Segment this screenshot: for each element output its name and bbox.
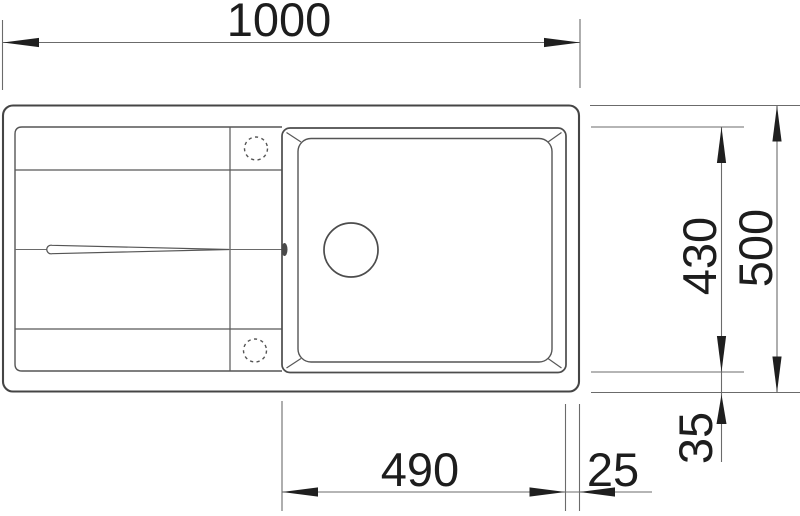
arrowhead-top xyxy=(717,127,726,163)
dimension-bowl-bottom-offset: 35 xyxy=(669,372,727,464)
dimension-bowl-depth: 430 xyxy=(591,127,744,372)
dimension-label-overall-width: 1000 xyxy=(227,0,332,46)
sink-technical-drawing-page: 1000 500 430 35 xyxy=(0,0,800,516)
dimension-bowl-right-offset: 25 xyxy=(566,404,653,511)
sink-body xyxy=(3,106,579,392)
arrowhead-right xyxy=(530,487,566,496)
dimension-overall-width: 1000 xyxy=(3,0,581,90)
channel-outlet-notch xyxy=(282,243,288,256)
bowl-chamfer-bottom-right xyxy=(548,359,562,369)
dimension-label-bowl-depth: 430 xyxy=(673,217,726,295)
bowl-chamfer-top-right xyxy=(548,133,562,143)
arrowhead-bottom xyxy=(772,357,781,393)
sink-technical-drawing: 1000 500 430 35 xyxy=(0,0,800,516)
tap-hole-top xyxy=(245,137,268,160)
dimension-label-bowl-bottom-offset: 35 xyxy=(669,412,722,464)
bowl-chamfer-top-left xyxy=(287,133,302,143)
main-bowl xyxy=(282,128,567,373)
tap-hole-bottom xyxy=(244,339,267,362)
bowl-inner-bottom xyxy=(298,139,552,363)
arrowhead-left xyxy=(282,487,318,496)
dimension-label-overall-depth: 500 xyxy=(729,209,782,287)
drainboard-groove xyxy=(47,245,229,254)
arrowhead-top xyxy=(772,106,781,142)
arrowhead-left xyxy=(3,38,39,47)
dimension-label-bowl-right-offset: 25 xyxy=(587,443,639,496)
arrowhead-bottom xyxy=(717,336,726,372)
drain-hole xyxy=(324,223,378,277)
arrowhead-right xyxy=(544,38,580,47)
dimension-label-bowl-width: 490 xyxy=(381,443,459,496)
dimension-bowl-width: 490 xyxy=(282,401,566,511)
bowl-chamfer-bottom-left xyxy=(287,359,302,369)
